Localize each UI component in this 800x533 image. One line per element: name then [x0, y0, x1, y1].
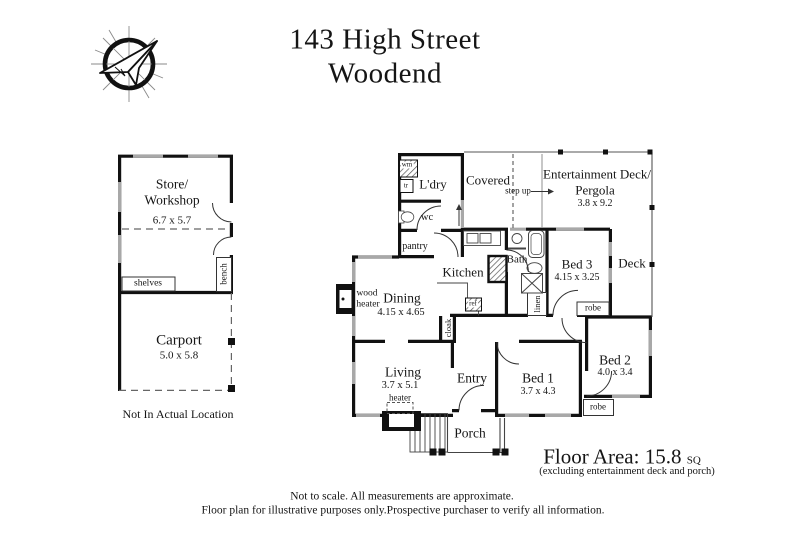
room-label-bath: Bath — [507, 255, 528, 266]
toilet-icon — [401, 212, 414, 222]
room-label-bed1: Bed 1 — [522, 371, 554, 385]
step-up-label: step up — [505, 187, 531, 196]
floorplan-page: 143 High Street Woodend Store/ Workshop … — [0, 0, 800, 533]
bath-fixtures — [399, 211, 545, 293]
trough-label: tr — [404, 183, 408, 190]
robe-bed3-label: robe — [585, 304, 601, 313]
linen-label: linen — [533, 296, 542, 313]
floor-area-note: (excluding entertainment deck and porch) — [539, 467, 715, 478]
wood-heater-label-1: wood — [356, 289, 377, 299]
room-label-deck: Deck — [618, 257, 645, 270]
room-dims-dining: 4.15 x 4.65 — [377, 308, 424, 319]
stove-icon — [489, 256, 507, 282]
room-label-carport: Carport — [156, 334, 202, 349]
room-label-entry: Entry — [457, 371, 487, 385]
room-label-laundry: L'dry — [419, 178, 447, 191]
basin-icon — [512, 234, 522, 244]
room-dims-carport: 5.0 x 5.8 — [160, 351, 199, 362]
location-note: Not In Actual Location — [123, 408, 234, 420]
bench-label: bench — [220, 263, 229, 285]
fridge-label: ref — [468, 301, 478, 308]
washing-machine-label: wm — [401, 162, 414, 169]
room-dims-bed3: 4.15 x 3.25 — [555, 273, 600, 283]
room-dims-bed1: 3.7 x 4.3 — [521, 387, 556, 397]
disclaimer-line1: Not to scale. All measurements are appro… — [290, 491, 514, 503]
compass-icon — [91, 26, 167, 102]
disclaimer-line2: Floor plan for illustrative purposes onl… — [202, 505, 605, 517]
robe-bed2-label: robe — [590, 403, 606, 412]
room-dims-bed2: 4.0 x 3.4 — [598, 368, 633, 378]
page-title-line2: Woodend — [328, 60, 442, 89]
room-label-porch: Porch — [454, 426, 486, 440]
room-label-covered: Covered — [466, 174, 510, 187]
room-label-bed2: Bed 2 — [599, 353, 631, 367]
cloak-label: cloak — [444, 319, 453, 337]
shower-icon — [522, 274, 543, 294]
floor-area-unit: SQ — [687, 455, 701, 467]
wood-heater-icon — [336, 284, 355, 314]
room-label-dining: Dining — [383, 291, 421, 305]
room-dims-store: 6.7 x 5.7 — [153, 216, 192, 227]
room-label-living: Living — [385, 365, 421, 379]
heater-label: heater — [389, 394, 411, 403]
page-title-line1: 143 High Street — [289, 26, 480, 55]
floor-area: Floor Area: 15.8 SQ — [543, 447, 701, 468]
room-label-bed3: Bed 3 — [562, 258, 593, 271]
room-label-ent-deck-2: Pergola — [575, 184, 614, 197]
room-dims-ent-deck: 3.8 x 9.2 — [578, 199, 613, 209]
room-label-kitchen: Kitchen — [442, 266, 483, 279]
shelves-label: shelves — [134, 279, 162, 289]
room-label-store-2: Workshop — [144, 193, 199, 207]
bathtub-icon — [531, 234, 542, 255]
wood-heater-label-2: heater — [356, 300, 379, 310]
room-label-pantry: pantry — [402, 242, 428, 252]
room-label-store-1: Store/ — [156, 177, 188, 191]
room-label-ent-deck-1: Entertainment Deck/ — [543, 168, 651, 181]
basin-icon — [527, 263, 542, 274]
room-dims-living: 3.7 x 5.1 — [382, 381, 419, 392]
room-label-wc: wc — [421, 213, 433, 224]
